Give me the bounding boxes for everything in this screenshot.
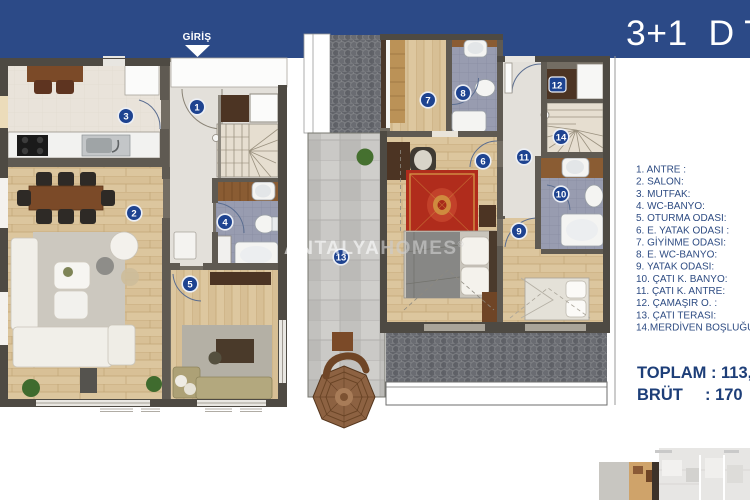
svg-text:8. E. WC-BANYO:: 8. E. WC-BANYO: — [636, 250, 717, 261]
svg-text:7. GİYİNME ODASI:: 7. GİYİNME ODASI: — [636, 235, 726, 248]
svg-text:TOPLAM : 113,: TOPLAM : 113, — [637, 364, 750, 382]
svg-text:1. ANTRE :: 1. ANTRE : — [636, 165, 686, 176]
svg-text:11. ÇATI K. ANTRE:: 11. ÇATI K. ANTRE: — [636, 286, 725, 297]
svg-text:14: 14 — [556, 132, 567, 143]
svg-text:2: 2 — [131, 208, 136, 219]
svg-text:4. WC-BANYO:: 4. WC-BANYO: — [636, 201, 705, 212]
svg-text:9. YATAK ODASI:: 9. YATAK ODASI: — [636, 262, 714, 273]
svg-text:1: 1 — [194, 102, 200, 113]
svg-text:13. ÇATI TERASI:: 13. ÇATI TERASI: — [636, 310, 716, 321]
svg-text:10. ÇATI K. BANYO:: 10. ÇATI K. BANYO: — [636, 274, 728, 285]
svg-text:5: 5 — [187, 279, 193, 290]
svg-text:14.MERDİVEN BOŞLUĞU :: 14.MERDİVEN BOŞLUĞU : — [636, 320, 750, 333]
svg-text:9: 9 — [516, 226, 521, 237]
svg-text:8: 8 — [460, 88, 465, 99]
svg-text:6. E. YATAK ODASI :: 6. E. YATAK ODASI : — [636, 225, 729, 236]
svg-text:11: 11 — [519, 152, 530, 163]
svg-text:GİRİŞ: GİRİŞ — [183, 30, 212, 43]
svg-text:4: 4 — [222, 217, 228, 228]
svg-text:12: 12 — [552, 80, 563, 91]
svg-text:2. SALON:: 2. SALON: — [636, 177, 684, 188]
svg-text:7: 7 — [425, 95, 430, 106]
svg-text:BRÜT: BRÜT — [637, 385, 683, 404]
svg-text:10: 10 — [556, 189, 567, 200]
svg-text:3+1 D T: 3+1 D T — [626, 13, 750, 53]
svg-text:3: 3 — [123, 111, 128, 122]
svg-text:: 170: : 170 — [705, 386, 743, 404]
svg-text:ANTALYAHOMES®: ANTALYAHOMES® — [284, 238, 465, 259]
svg-text:3. MUTFAK:: 3. MUTFAK: — [636, 189, 690, 200]
svg-text:5. OTURMA ODASI:: 5. OTURMA ODASI: — [636, 213, 727, 224]
svg-text:6: 6 — [480, 156, 485, 167]
svg-text:12. ÇAMAŞIR O. :: 12. ÇAMAŞIR O. : — [636, 298, 717, 309]
